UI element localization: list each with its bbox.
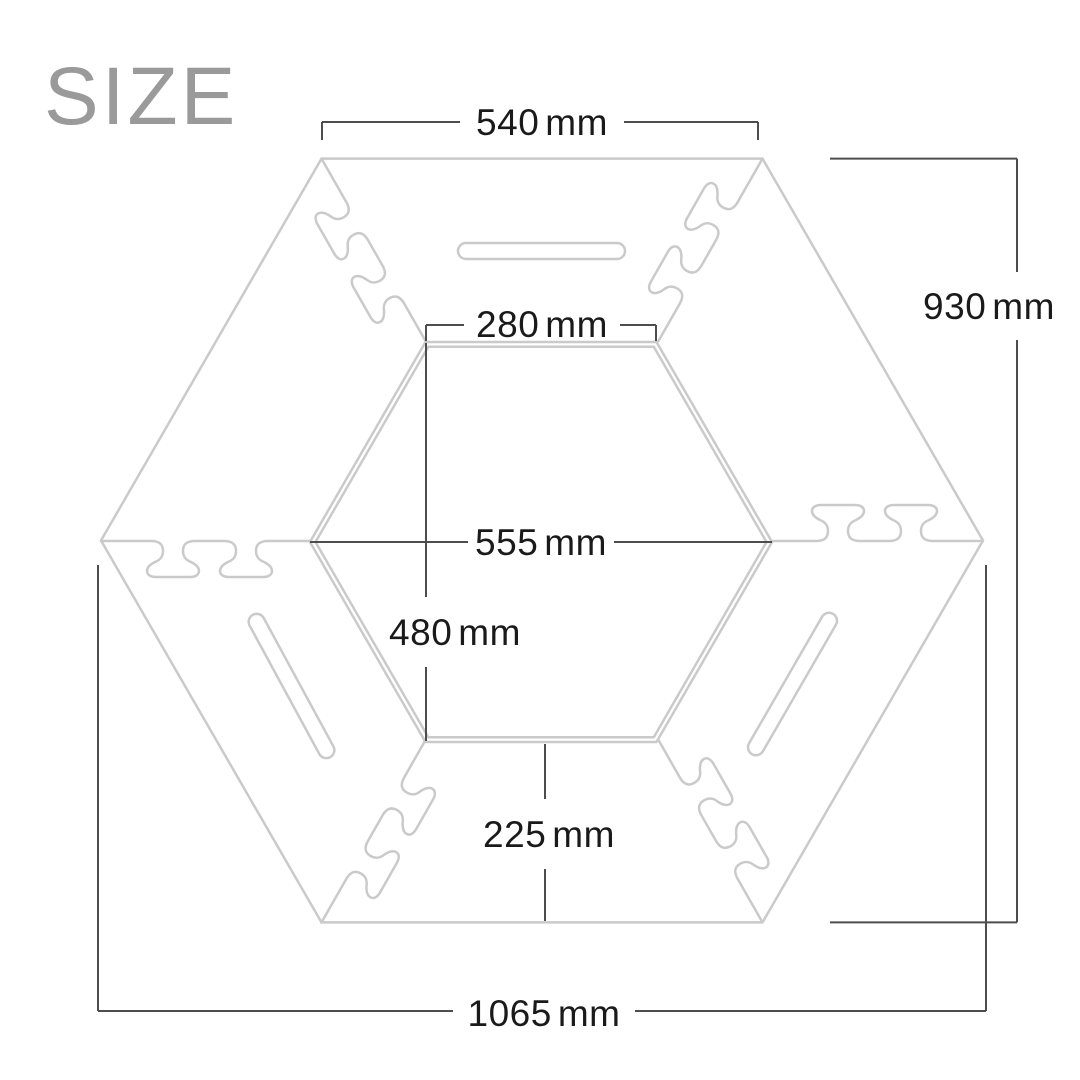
dimension-top-edge [322,122,758,140]
dimension-value: 280 [476,304,539,345]
puzzle-joint-right [773,505,983,541]
dimension-unit: mm [992,286,1055,327]
handle-slot-top [458,243,625,259]
dimension-value: 480 [389,612,452,653]
dimension-label-inner-width: 555mm [475,522,607,563]
dimension-unit: mm [545,102,608,143]
dimension-value: 225 [483,814,546,855]
dimension-value: 1065 [468,993,552,1034]
dimension-value: 555 [475,522,538,563]
handle-slot-lower-left [246,611,337,761]
dimension-label-inner-height: 480mm [389,612,521,653]
dimension-label-overall-height: 930mm [923,286,1055,327]
dimension-unit: mm [558,993,621,1034]
dimension-unit: mm [552,814,615,855]
dimension-label-ring-depth: 225mm [483,814,615,855]
dimension-value: 930 [923,286,986,327]
dimension-label-inner-top-edge: 280mm [476,304,608,345]
dimension-unit: mm [544,522,607,563]
size-diagram-page: SIZE [0,0,1080,1080]
dimension-lines-group [98,122,1017,1011]
page-title: SIZE [44,51,238,142]
dimension-label-top-edge: 540mm [476,102,608,143]
puzzle-joint-top-right [627,141,762,341]
dimension-inner-top-edge [426,325,656,341]
puzzle-joint-bottom-left [322,740,457,940]
dimension-value: 540 [476,102,539,143]
dimension-unit: mm [458,612,521,653]
dimension-overall-width [98,565,986,1011]
dimension-label-overall-width: 1065mm [468,993,621,1034]
puzzle-joint-top-left [290,159,425,359]
puzzle-joint-bottom-right [658,722,793,922]
outer-hexagon-outline [101,159,983,923]
puzzle-joint-left [101,541,311,577]
size-diagram: SIZE [0,0,1080,1080]
handle-slot-lower-right [745,610,840,758]
dimension-unit: mm [545,304,608,345]
